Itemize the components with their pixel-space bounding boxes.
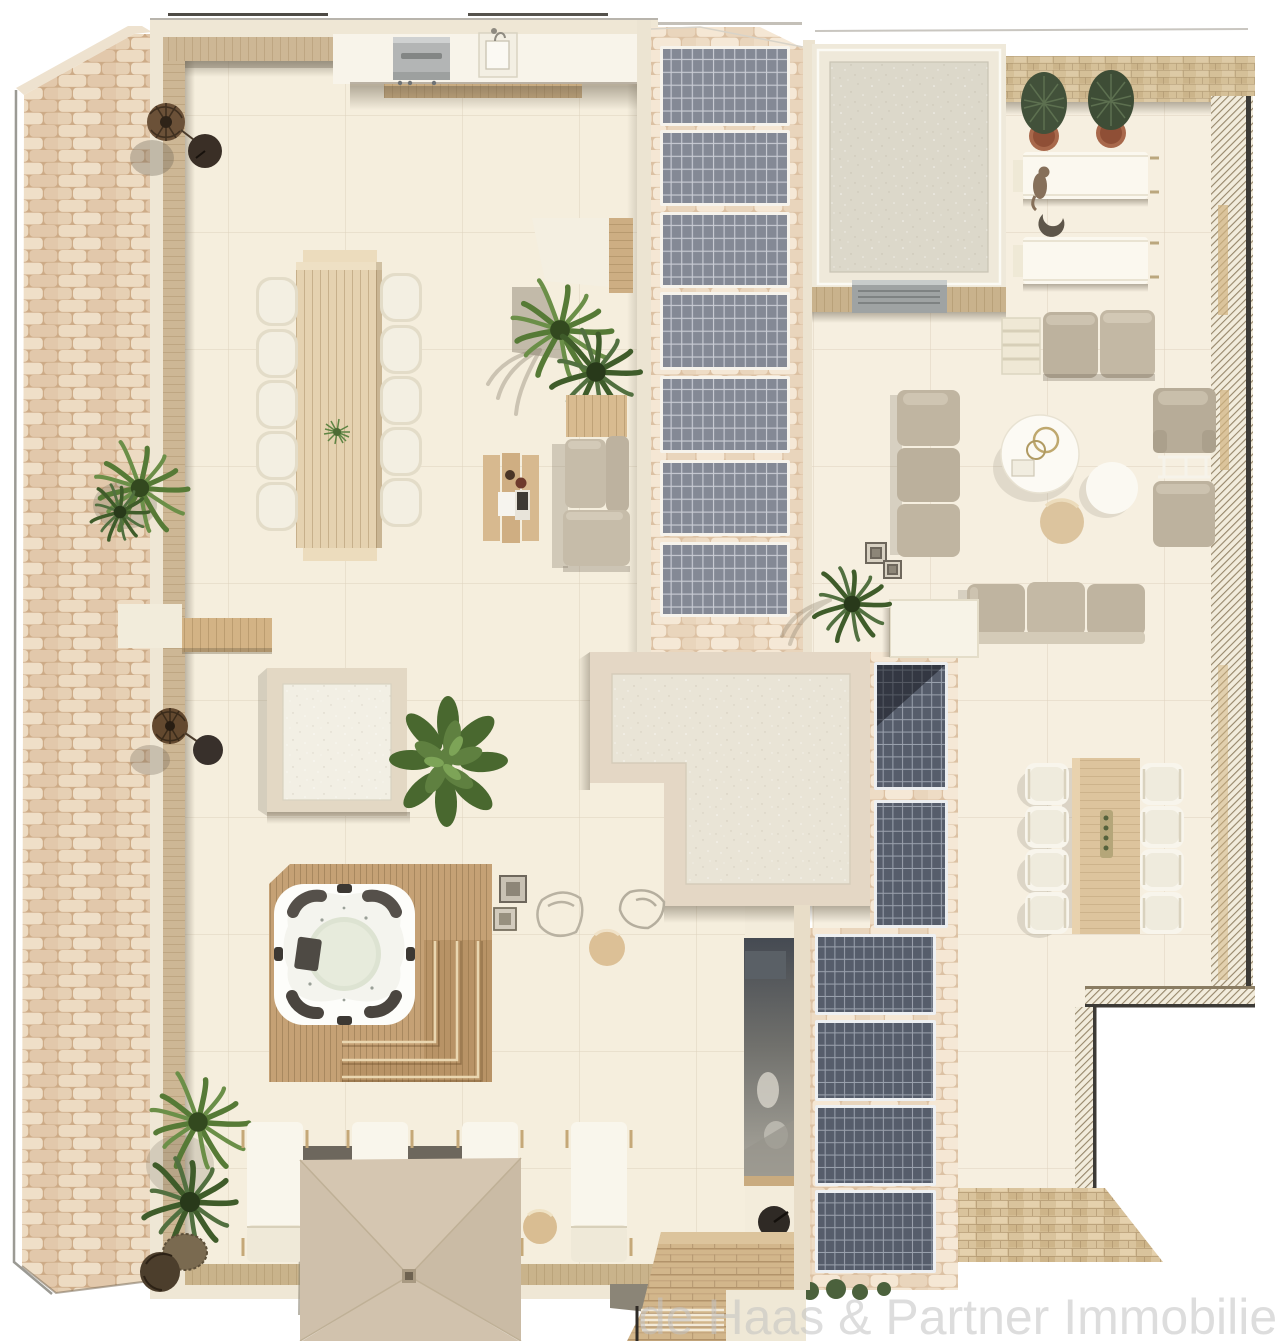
svg-text:de Haas & Partner Immobilien: de Haas & Partner Immobilien bbox=[638, 1289, 1280, 1341]
